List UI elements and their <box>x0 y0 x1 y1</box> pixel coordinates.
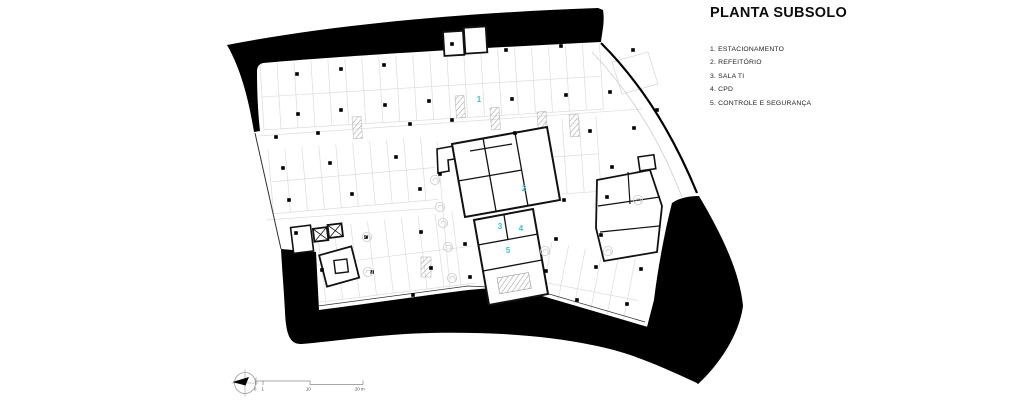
rooms-right <box>596 155 662 261</box>
scale-label-1: 1 <box>262 387 265 392</box>
legend-item-cpd: 4. CPD <box>710 83 1010 96</box>
legend-item-controle-seguranca: 5. CONTROLE E SEGURANÇA <box>710 97 1010 110</box>
area-label-4: 4 <box>519 224 524 233</box>
north-arrow-icon <box>232 370 259 397</box>
core-upper <box>437 127 560 217</box>
page-title: PLANTA SUBSOLO <box>710 5 1010 21</box>
legend: 1. ESTACIONAMENTO 2. REFEITÓRIO 3. SALA … <box>710 43 1010 110</box>
rooms-top <box>443 26 488 56</box>
legend-item-refeitorio: 2. REFEITÓRIO <box>710 56 1010 69</box>
area-label-1: 1 <box>477 95 482 104</box>
scale-label-20m: 20 m <box>355 387 365 392</box>
area-label-5: 5 <box>506 246 511 255</box>
scale-label-0: 0 <box>254 387 257 392</box>
title-block: PLANTA SUBSOLO 1. ESTACIONAMENTO 2. REFE… <box>710 5 1010 110</box>
legend-item-estacionamento: 1. ESTACIONAMENTO <box>710 43 1010 56</box>
poche-top-band <box>227 8 604 132</box>
scale-bar: 0 1 10 20 m <box>254 378 365 392</box>
area-label-3: 3 <box>498 222 503 231</box>
drawing-sheet: 1 2 3 4 5 0 1 10 20 m PLANTA SUBSOLO <box>0 0 1024 410</box>
area-label-2: 2 <box>522 184 527 193</box>
scale-label-10: 10 <box>306 387 311 392</box>
legend-item-sala-ti: 3. SALA TI <box>710 70 1010 83</box>
